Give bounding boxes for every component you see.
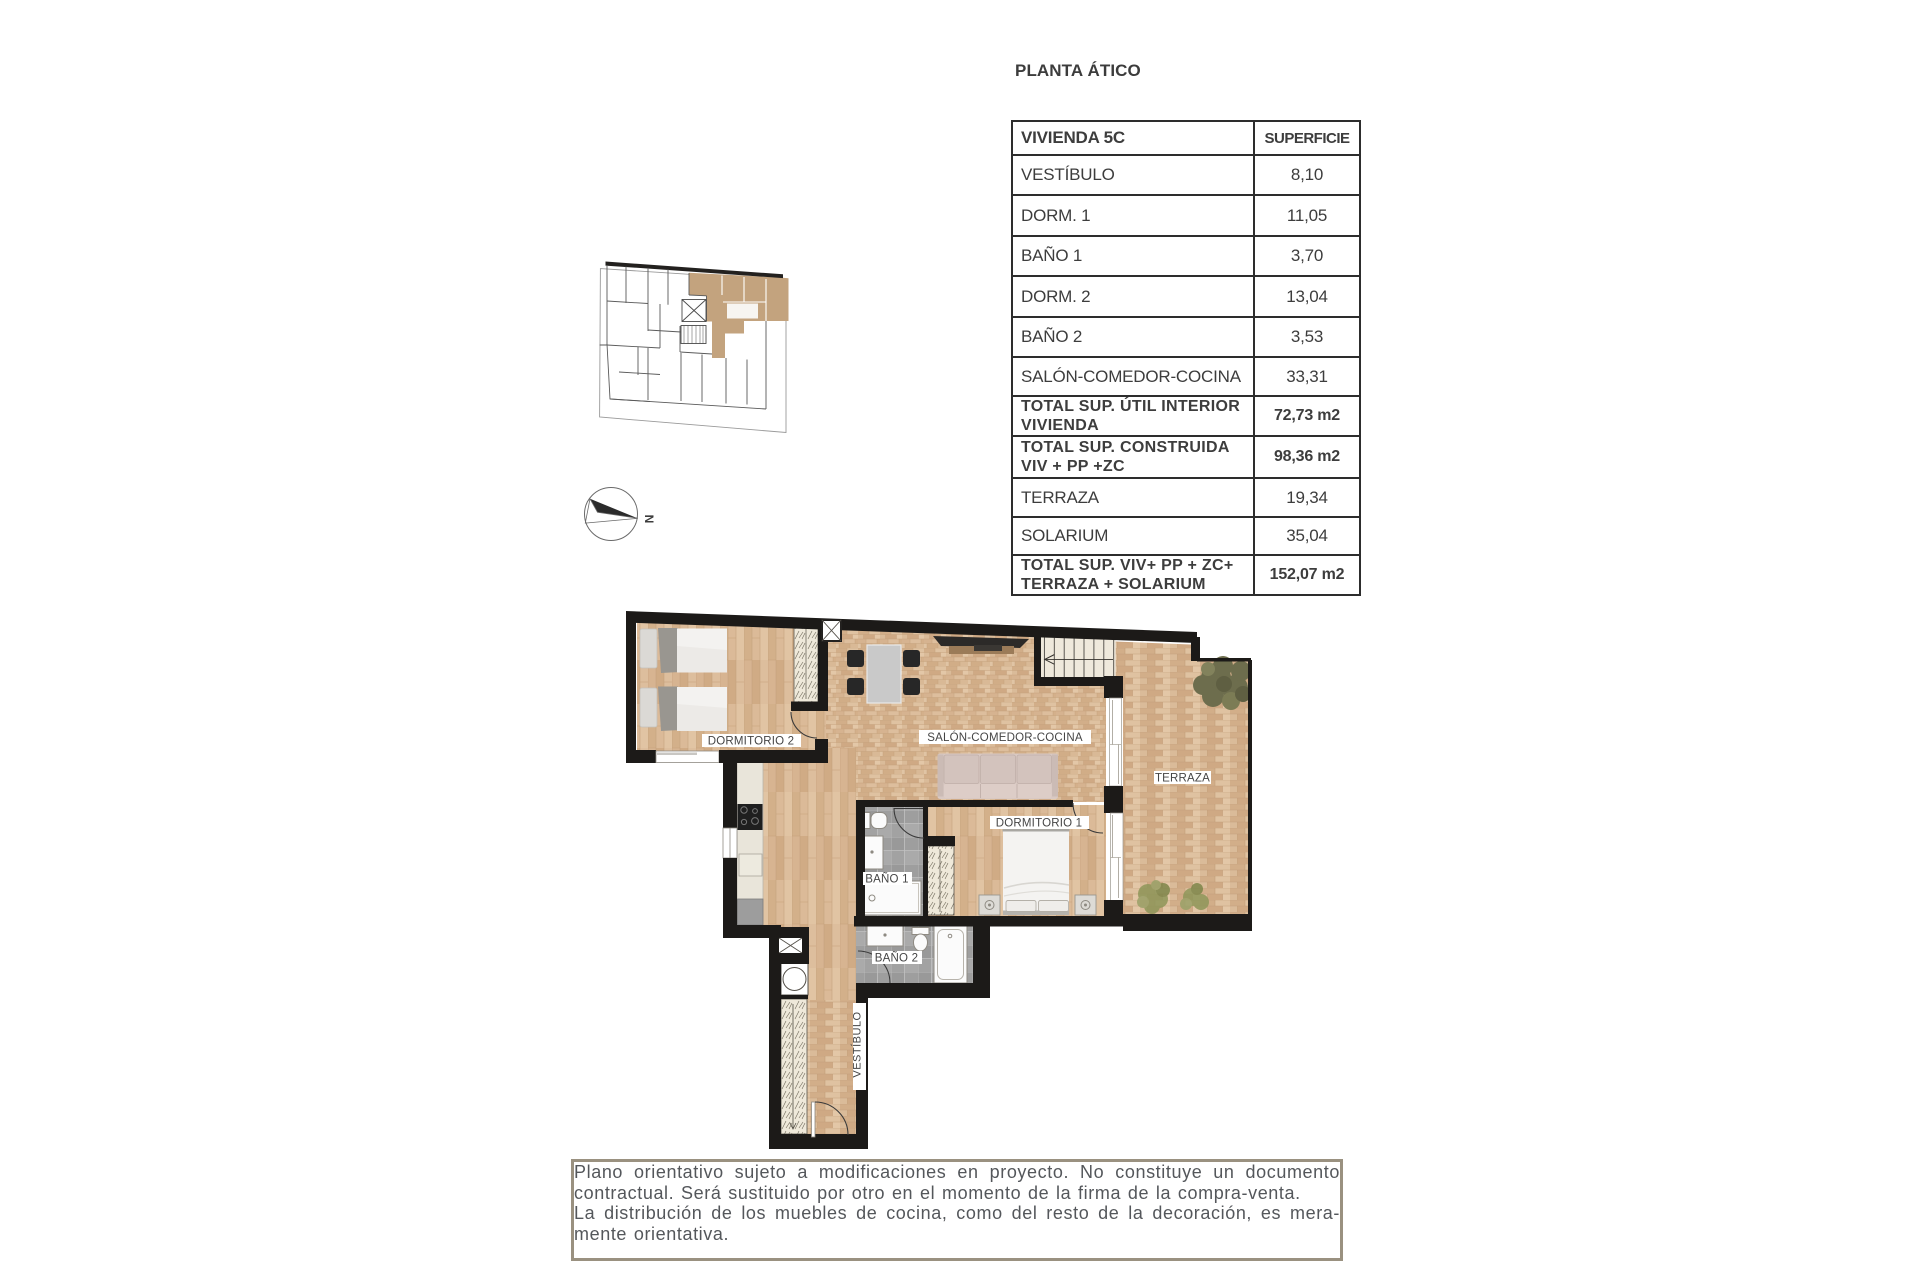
svg-text:SALÓN-COMEDOR-COCINA: SALÓN-COMEDOR-COCINA bbox=[927, 731, 1083, 744]
svg-text:TERRAZA: TERRAZA bbox=[1155, 773, 1210, 785]
svg-text:BAÑO 2: BAÑO 2 bbox=[875, 952, 918, 965]
svg-text:BAÑO 1: BAÑO 1 bbox=[865, 873, 908, 886]
svg-text:N: N bbox=[642, 515, 656, 524]
svg-text:DORMITORIO 1: DORMITORIO 1 bbox=[996, 818, 1083, 830]
svg-text:DORMITORIO 2: DORMITORIO 2 bbox=[708, 736, 795, 748]
svg-text:VESTÍBULO: VESTÍBULO bbox=[851, 1011, 864, 1077]
